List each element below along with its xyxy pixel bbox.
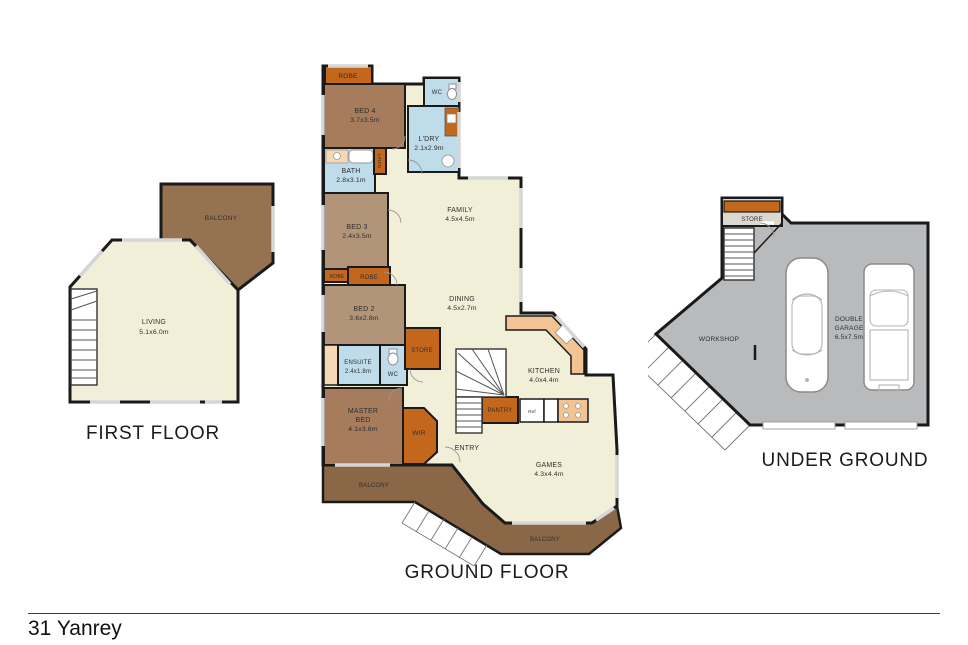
ute-icon <box>864 264 914 391</box>
label-kitchen-dims: 4.0x4.4m <box>529 377 559 384</box>
label-master-dims: 4.1x3.6m <box>348 426 378 433</box>
footer-divider <box>28 613 940 614</box>
floorplan-page: BALCONY LIVING 5.1x6.0m FIRST FLOOR <box>0 0 968 645</box>
label-bed2-dims: 3.6x2.8m <box>349 315 379 322</box>
label-store-ground: STORE <box>411 348 433 354</box>
label-balcony-first: BALCONY <box>205 215 238 222</box>
label-bath-dims: 2.8x3.1m <box>336 177 366 184</box>
label-balcony-rear: BALCONY <box>530 537 560 543</box>
label-garage: DOUBLE <box>835 316 863 323</box>
washer-icon <box>442 155 454 167</box>
label-bath: BATH <box>342 168 361 175</box>
label-ensuite-dims: 2.4x1.8m <box>345 369 371 375</box>
basin-icon <box>334 153 341 160</box>
label-ldry: L'DRY <box>419 136 440 143</box>
label-bed3: BED 3 <box>346 224 367 231</box>
label-robe-top: ROBE <box>338 73 358 80</box>
label-family: FAMILY <box>447 207 473 214</box>
label-dining: DINING <box>449 296 475 303</box>
label-wc-top: WC <box>432 90 443 96</box>
label-family-dims: 4.5x4.5m <box>445 216 475 223</box>
label-bed2: BED 2 <box>353 306 374 313</box>
label-workshop: WORKSHOP <box>699 336 739 343</box>
label-kitchen: KITCHEN <box>528 368 560 375</box>
label-garage-dims: 6.5x7.5m <box>835 334 863 341</box>
caption-first-floor: FIRST FLOOR <box>53 423 253 445</box>
label-living: LIVING <box>142 319 166 326</box>
caption-under-ground: UNDER GROUND <box>745 450 945 472</box>
label-wir: WIR <box>412 430 425 437</box>
bathtub-icon <box>349 150 373 163</box>
room-bed4 <box>324 84 405 148</box>
label-living-dims: 5.1x6.0m <box>139 329 169 336</box>
label-games-dims: 4.3x4.4m <box>534 471 564 478</box>
ensuite-vanity <box>324 345 338 385</box>
label-master-2: BED <box>356 417 371 424</box>
label-bed4-dims: 3.7x3.5m <box>350 117 380 124</box>
label-robe-right: ROBE <box>360 275 378 281</box>
room-bed3 <box>324 193 388 269</box>
store-shelf <box>724 201 780 212</box>
label-bed4: BED 4 <box>354 108 375 115</box>
laundry-trough <box>447 114 456 123</box>
label-ldry-dims: 2.1x2.9m <box>414 145 444 152</box>
label-fridge: Ref <box>528 409 536 414</box>
label-ensuite: ENSUITE <box>344 360 371 366</box>
caption-ground-floor: GROUND FLOOR <box>387 562 587 584</box>
label-bed3-dims: 2.4x3.5m <box>342 233 372 240</box>
floorplan-first-floor: BALCONY LIVING 5.1x6.0m <box>53 175 280 421</box>
floorplan-under-ground: STORE WORKSHOP DOUBLE GARAGE 6.5x7.5m <box>648 190 938 454</box>
stairs-underground <box>724 228 754 280</box>
label-dining-dims: 4.5x2.7m <box>447 305 477 312</box>
cupboard <box>544 399 558 422</box>
label-robe-left: ROBE <box>330 274 345 280</box>
label-games: GAMES <box>536 462 562 469</box>
address-text: 31 Yanrey <box>28 617 122 641</box>
label-store-underground: STORE <box>741 217 763 223</box>
label-linen: LINEN <box>377 154 382 168</box>
label-garage-2: GARAGE <box>834 325 863 332</box>
label-master: MASTER <box>348 408 378 415</box>
car-icon <box>786 258 828 392</box>
label-wc2: WC <box>388 372 399 378</box>
label-balcony-side: BALCONY <box>359 483 389 489</box>
label-pantry: PANTRY <box>488 408 513 414</box>
stove <box>558 399 588 422</box>
stairs-first-floor <box>71 289 97 385</box>
floorplan-ground-floor: ROBE BED 4 3.7x3.5m WC L'DRY 2.1x2.9m BA… <box>315 55 637 567</box>
label-entry: ENTRY <box>455 445 480 452</box>
